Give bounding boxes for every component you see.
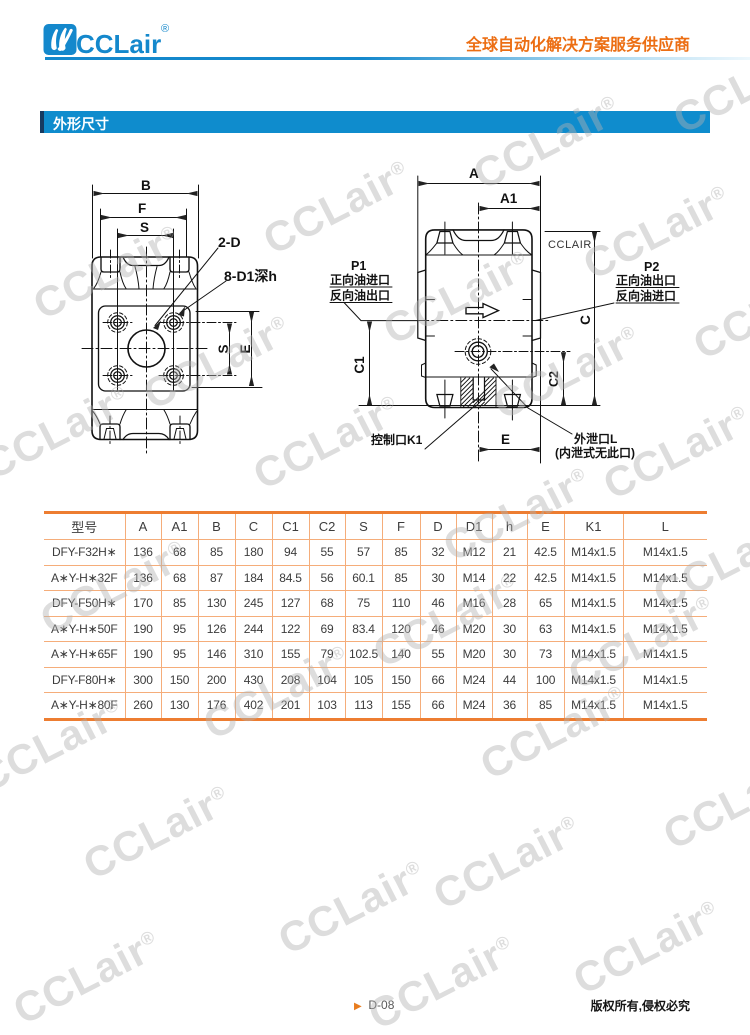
svg-text:B: B [141, 178, 151, 193]
svg-text:反向油出口: 反向油出口 [330, 288, 390, 303]
svg-text:反向油进口: 反向油进口 [616, 288, 676, 303]
svg-text:外泄口L: 外泄口L [574, 431, 617, 446]
svg-text:C: C [578, 315, 593, 325]
svg-text:A1: A1 [500, 191, 518, 206]
svg-text:P1: P1 [351, 259, 366, 273]
svg-text:2-D: 2-D [218, 234, 241, 250]
svg-text:F: F [138, 201, 146, 216]
svg-text:E: E [501, 432, 510, 447]
svg-text:8-D1深h: 8-D1深h [224, 268, 277, 284]
svg-text:C1: C1 [352, 356, 367, 374]
svg-text:正向油进口: 正向油进口 [330, 272, 390, 287]
